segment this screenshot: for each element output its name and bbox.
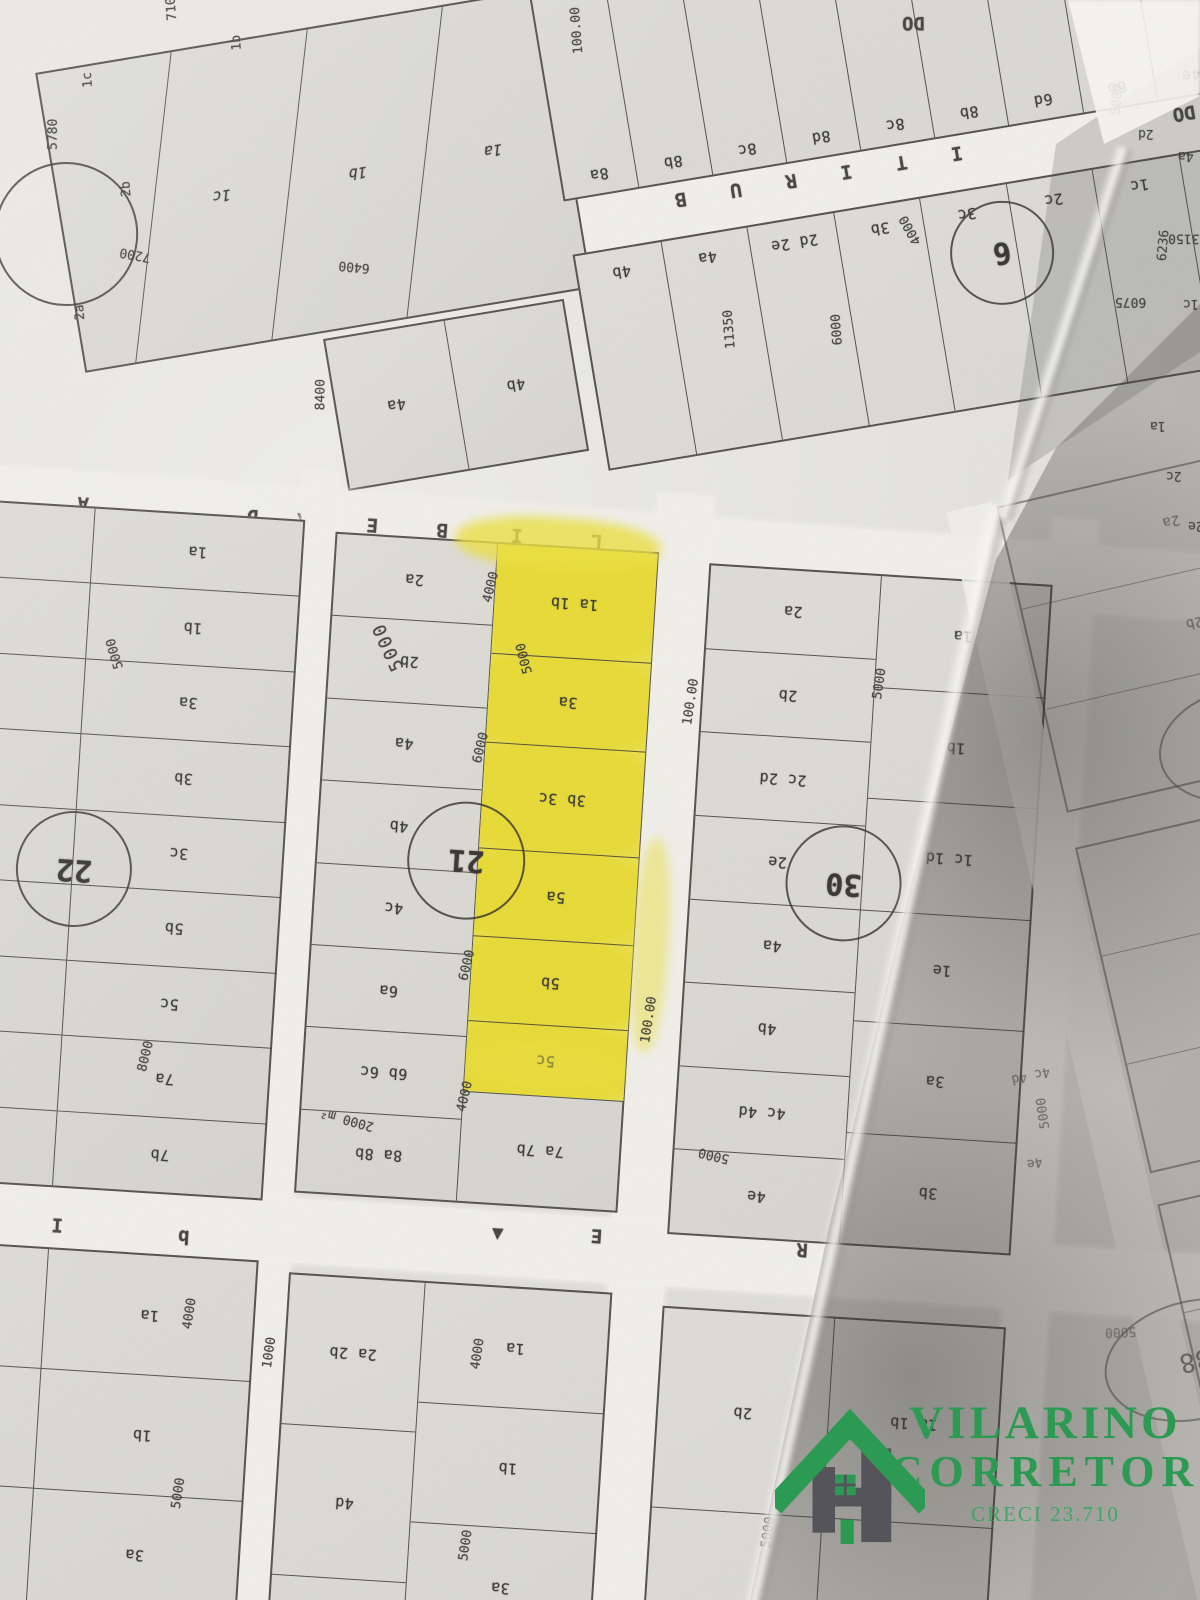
block-quadra-q: 2a 2b4d4b4c1a1b3a3b3c3400050001000 <box>251 1272 612 1600</box>
lot-cell: 4a <box>322 697 487 789</box>
street-letter: I <box>839 160 854 184</box>
street-letter: R <box>784 169 799 193</box>
lot-label: 4a <box>394 734 414 753</box>
block-number: 22 <box>55 851 93 888</box>
lot-label: 1a 1b <box>550 593 599 614</box>
lot-area-label: 2a <box>72 304 88 321</box>
lot-area-label: 6000 <box>828 313 845 345</box>
lot-area-label: 3150 <box>1168 231 1199 246</box>
lot-label: 4b <box>757 1020 777 1039</box>
lot-label: 3a <box>558 693 578 712</box>
lot-cell <box>0 492 94 582</box>
lot-label: 1a <box>505 1339 525 1358</box>
lot-label: 6b <box>1106 77 1128 98</box>
lot-cell: 2c 2d <box>696 731 871 825</box>
street-letter: U <box>728 178 743 202</box>
lot-cell: 1a <box>91 509 305 596</box>
lot-label: 2a <box>783 602 803 621</box>
lot-cell: 3a <box>26 1488 242 1600</box>
lot-label: 4b <box>610 261 632 282</box>
lot-cell: 1a <box>419 1283 612 1414</box>
lot-label: 3b <box>870 218 892 239</box>
street-letter: R <box>796 1238 809 1261</box>
lot-area-label: 1b <box>228 34 244 51</box>
lot-label: 1e <box>932 961 952 980</box>
street-letter: I <box>51 1213 64 1236</box>
lot-cell: 8a 8b <box>296 1108 461 1200</box>
lot-label: 2a <box>1160 511 1181 531</box>
lot-label: 3a <box>490 1579 510 1598</box>
lot-label: 8c <box>736 139 758 160</box>
lot-cell: 2a <box>706 565 881 658</box>
lot-area-label: 11350 <box>720 310 738 350</box>
street-junction-mark: ▲ <box>491 1224 504 1247</box>
lot-label: 1a <box>139 1306 159 1325</box>
lot-label: 2d 2e <box>769 230 819 256</box>
lot-label: 2a 2b <box>329 1343 378 1364</box>
lot-label: 5b <box>541 974 561 993</box>
lot-cell: 2b <box>327 615 492 707</box>
lot-label: 3b 3c <box>538 789 587 810</box>
lot-label: 2b <box>733 1403 753 1422</box>
brand-subtitle: CORRETOR <box>873 1447 1200 1498</box>
street-letter: E <box>590 1224 603 1247</box>
lot-label: 8c <box>884 114 906 135</box>
lot-label: 4a <box>386 394 408 415</box>
lot-cell: 5b <box>468 936 633 1030</box>
lot-area-label: 5000 <box>1105 1323 1137 1340</box>
lot-label: 2b <box>1184 612 1200 632</box>
block-right-column: 1a1b3a3b3c <box>10 1249 258 1600</box>
block-number: 6 <box>990 234 1014 272</box>
lot-label: 6a <box>379 981 399 1000</box>
lot-cell: 3a <box>81 658 295 746</box>
lot-area-label: 4c 4d <box>1010 1063 1052 1086</box>
lot-label: 4b <box>389 817 409 836</box>
block-quadra-21: 2a2b4a4b4c6a6b 6c8a 8b1a 1b3a3b 3c5a5b5c… <box>294 532 659 1213</box>
street-letter: T <box>894 150 909 174</box>
lot-label: 1b <box>183 618 203 637</box>
lot-label: 4a <box>762 936 782 955</box>
block-quadra-22: 1a1b3a3b3c5b5c7a7b2250008000 <box>0 490 305 1200</box>
block-number: 38 <box>1177 1342 1200 1378</box>
lot-label: 5a <box>546 887 566 906</box>
lot-label: 1b <box>132 1426 152 1445</box>
brand-license: CRECI 23.710 <box>873 1502 1200 1527</box>
block-number: 30 <box>824 865 862 902</box>
block-number: 21 <box>447 842 485 879</box>
lot-cell: 2b <box>701 648 876 742</box>
brand-name: VILARINO <box>873 1400 1200 1447</box>
lot-area-label: 1c <box>80 71 96 88</box>
lot-label: 4b <box>505 374 527 395</box>
lot-cell: 1b <box>411 1402 604 1534</box>
lot-area-label: 7100 <box>162 0 179 21</box>
lot-area-label: 8400 <box>313 379 328 410</box>
lot-label: 6b 6c <box>359 1062 408 1083</box>
lot-label: 4a <box>697 247 719 268</box>
lot-label: 3b <box>173 769 193 788</box>
lot-label: 3b <box>918 1183 938 1202</box>
lot-label: 8a 8b <box>354 1145 403 1166</box>
lot-cell: 4b <box>444 301 588 469</box>
photographed-plat-map: BURITIDO1c1b1a578071001b1c2b2a720064004a… <box>0 0 1200 1600</box>
lot-label: 7a 7b <box>516 1141 565 1162</box>
lot-cell: 4b <box>680 982 855 1076</box>
lot-cell: 1a <box>41 1249 257 1381</box>
lot-label: 8a <box>588 164 610 185</box>
lot-area-label: 4e <box>1025 1153 1044 1171</box>
lot-label: 2a <box>405 570 425 589</box>
lot-label: 4c <box>384 899 404 918</box>
lot-label: 1a <box>483 140 504 162</box>
lot-label: 2b <box>778 686 798 705</box>
lot-label: 7b <box>149 1145 169 1164</box>
street-letter: I <box>949 141 964 165</box>
lot-label: 1b <box>497 1459 517 1478</box>
lot-area-label: 6075 <box>1115 294 1146 309</box>
lot-label: 3a <box>925 1072 945 1091</box>
lot-label: 1b <box>347 162 368 184</box>
lot-label: 8b <box>958 102 980 123</box>
lot-label: 6d <box>1032 90 1054 111</box>
block-number-circle <box>0 151 149 317</box>
lot-cell: 2a 2b <box>282 1274 425 1431</box>
lot-label: 4e <box>747 1187 767 1206</box>
lot-label: 3c <box>168 844 188 863</box>
mini-block: 4a4b8400 <box>323 299 589 491</box>
lot-label: 2c <box>1042 189 1064 210</box>
lot-label: 2e <box>768 853 788 872</box>
lot-cell: 5c <box>62 959 276 1047</box>
lot-cell: 4e <box>669 1149 844 1243</box>
lot-cell: 3a <box>486 653 651 751</box>
street-letter: b <box>177 1225 190 1248</box>
lot-cell: 6a <box>307 944 472 1036</box>
lot-area-label: 5780 <box>45 119 60 150</box>
watermark-logo: VILARINO CORRETOR CRECI 23.710 <box>755 1382 1200 1582</box>
lot-label: 4c 4d <box>738 1102 787 1123</box>
lot-label: 5c <box>159 994 179 1013</box>
block-quadra-p: 1a1b3a3b3c340005000 <box>0 1231 259 1600</box>
lot-cell: 7a <box>58 1035 272 1123</box>
street-letter: B <box>673 187 688 211</box>
lot-label: 8b <box>662 151 684 172</box>
lot-label: 4d <box>334 1493 354 1512</box>
lot-cell: 3a <box>403 1522 596 1600</box>
lot-cell: 3b <box>76 733 290 821</box>
lot-cell: 7b <box>53 1110 267 1198</box>
street-letter: DO <box>902 12 925 34</box>
lot-label: 8d <box>810 127 832 148</box>
lot-label: 1c <box>211 185 232 207</box>
lot-label: 3a <box>178 693 198 712</box>
lot-cell: 7a 7b <box>457 1090 624 1210</box>
lot-label: 2c 2d <box>759 768 808 789</box>
lot-area-label: 100.00 <box>568 6 587 54</box>
lot-cell: 4d <box>272 1423 416 1581</box>
lot-label: 1a <box>187 543 207 562</box>
lot-cell: 1b <box>34 1368 250 1501</box>
lot-label: 7a <box>154 1070 174 1089</box>
lot-area-label: 5000 <box>1034 1097 1053 1130</box>
lot-area-label: 6400 <box>338 257 371 275</box>
lot-label: 3a <box>124 1546 144 1565</box>
lot-label: 5b <box>164 919 184 938</box>
lot-label: 1c <box>1129 175 1151 196</box>
lot-label: 4e <box>1180 65 1200 86</box>
street-letter: DO <box>1171 100 1197 125</box>
